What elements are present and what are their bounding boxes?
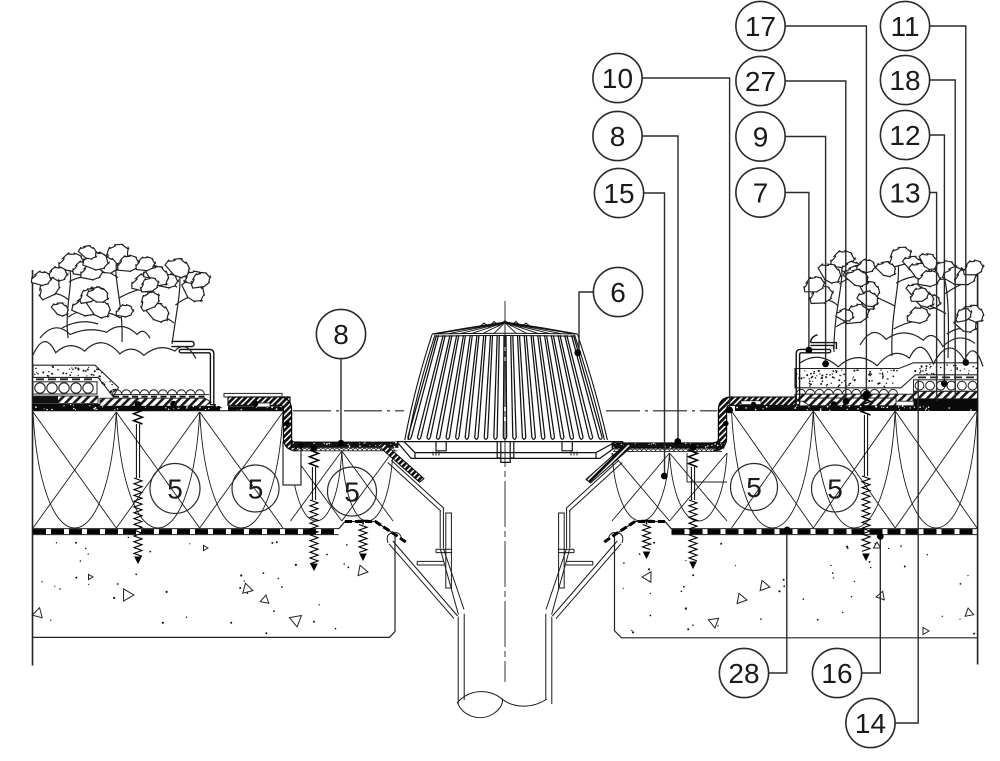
svg-text:27: 27 bbox=[745, 66, 776, 97]
svg-text:14: 14 bbox=[855, 708, 886, 739]
svg-text:6: 6 bbox=[610, 277, 626, 308]
svg-text:5: 5 bbox=[167, 474, 183, 505]
svg-text:5: 5 bbox=[344, 477, 360, 508]
svg-text:5: 5 bbox=[827, 474, 843, 505]
svg-text:11: 11 bbox=[890, 11, 919, 42]
svg-text:18: 18 bbox=[889, 65, 920, 96]
svg-text:16: 16 bbox=[821, 658, 852, 689]
svg-text:7: 7 bbox=[753, 177, 769, 208]
svg-text:8: 8 bbox=[333, 319, 349, 350]
svg-text:10: 10 bbox=[602, 63, 633, 94]
svg-text:17: 17 bbox=[745, 11, 776, 42]
svg-text:5: 5 bbox=[248, 474, 264, 505]
svg-text:8: 8 bbox=[610, 121, 626, 152]
svg-text:13: 13 bbox=[889, 177, 920, 208]
svg-text:9: 9 bbox=[753, 121, 769, 152]
svg-text:28: 28 bbox=[728, 658, 759, 689]
svg-text:12: 12 bbox=[889, 120, 920, 151]
svg-text:5: 5 bbox=[746, 472, 762, 503]
svg-text:15: 15 bbox=[603, 178, 634, 209]
